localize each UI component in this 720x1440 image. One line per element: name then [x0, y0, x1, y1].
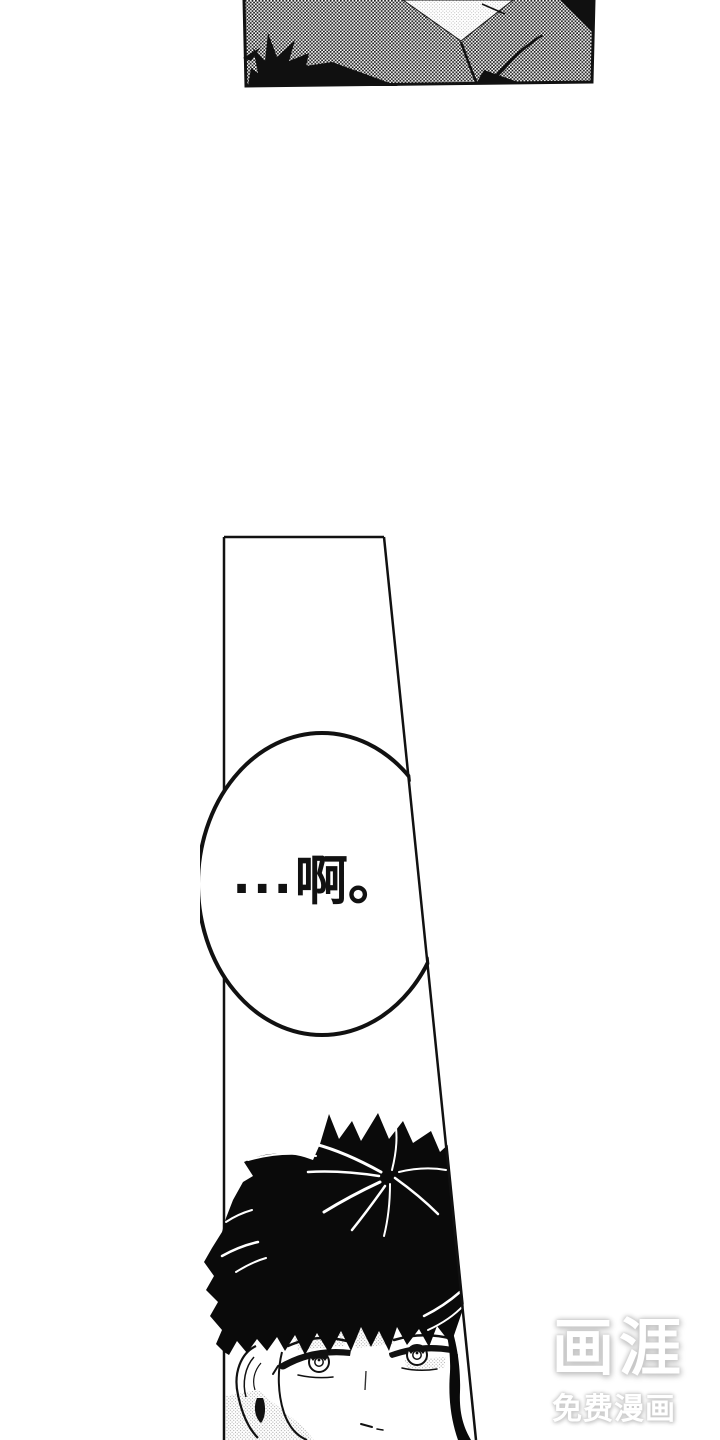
bubble-word: 啊。: [295, 852, 401, 911]
nose-bridge-line: [365, 1371, 366, 1390]
manga-page: ...啊。 画涯 免费漫画: [0, 0, 720, 1440]
nose-mark-small: [377, 1429, 383, 1430]
main-panel-artwork: [200, 530, 500, 1440]
speech-bubble-text: ...啊。: [217, 846, 417, 912]
bubble-ellipsis: ...: [233, 838, 295, 906]
watermark: 画涯 免费漫画: [552, 1316, 712, 1428]
right-iris: [407, 1344, 427, 1365]
watermark-tagline: 免费漫画: [552, 1384, 712, 1428]
top-panel-artwork: [236, 0, 596, 90]
left-iris: [309, 1351, 329, 1372]
watermark-logo: 画涯: [552, 1316, 712, 1381]
